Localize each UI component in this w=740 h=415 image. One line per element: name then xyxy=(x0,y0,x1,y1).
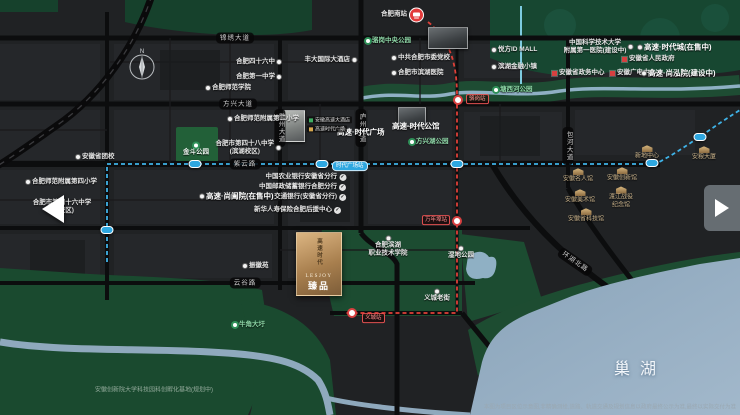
project-logo: 高速时代 LESJOY 臻品 xyxy=(296,232,342,296)
poi-dot-icon xyxy=(492,65,496,69)
map-label-museum-40: 新地中心 xyxy=(635,145,659,161)
map-label-text: 悦方ID MALL xyxy=(498,46,537,54)
poi-dot-icon xyxy=(276,146,280,150)
map-label-dot-3: 合肥师范学院 xyxy=(206,84,251,92)
map-label-text: 合肥市滨湖医院 xyxy=(398,69,444,77)
map-label-dot-12: 滨湖金融小镇 xyxy=(492,63,537,71)
map-label-text: 中国农业银行安徽省分行 xyxy=(266,173,338,181)
map-label-dot-9: 中共合肥市委党校 xyxy=(392,54,450,62)
map-label-big-59: 巢湖 xyxy=(614,360,666,380)
poi-dot-icon xyxy=(200,194,204,198)
carousel-next-button[interactable] xyxy=(704,185,740,231)
map-label-redsq-23: 安徽省政务中心 xyxy=(552,69,605,77)
map-label-check-21: 新华人寿保险合肥后援中心 xyxy=(254,206,341,214)
building-photo-1 xyxy=(428,27,468,49)
map-label-dot-6: 安徽省团校 xyxy=(76,153,115,161)
project-logo-vertical-text: 高速时代 xyxy=(315,238,323,266)
map-label-stlb-50: 时代广场站 xyxy=(332,161,368,171)
map-label-dot-15: 合肥滨湖职业技术学院 xyxy=(369,236,408,257)
map-label-redsq-22: 安徽省人民政府 xyxy=(622,55,675,63)
map-label-text: 安徽省人民政府 xyxy=(629,55,675,63)
map-label-text: 骆岗中央公园 xyxy=(372,37,411,45)
poi-dot-icon xyxy=(26,180,30,184)
map-label-hsr-54: 合肥南站 xyxy=(381,8,424,23)
map-label-text: 高速·尚阖院(在售中) xyxy=(206,191,274,200)
poi-dot-icon xyxy=(277,60,281,64)
government-marker-icon xyxy=(610,71,615,76)
map-label-text: 金斗公园 xyxy=(183,148,209,156)
poi-dot-icon xyxy=(628,45,632,49)
park-dot-icon xyxy=(194,143,198,147)
map-label-text: 骆岗站 xyxy=(469,96,486,103)
poi-dot-icon xyxy=(392,71,396,75)
map-label-museum-36: 安徽创新馆 xyxy=(607,167,637,183)
map-label-bold-29: 高速·尚泓院(建设中) xyxy=(642,68,716,77)
metro-station-blue-icon-3 xyxy=(451,160,464,168)
map-label-text: 万年埠站 xyxy=(425,217,447,224)
poi-dot-icon xyxy=(392,56,396,60)
poi-dot-icon xyxy=(638,45,642,49)
poi-dot-icon xyxy=(206,86,210,90)
map-label-roadv-49: 包河大道 xyxy=(562,127,573,165)
map-label-strb-53: 义城站 xyxy=(362,313,385,323)
map-label-text: 合肥师范学院 xyxy=(212,84,251,92)
poi-dot-icon xyxy=(492,48,496,52)
carousel-prev-arrow-icon[interactable] xyxy=(42,195,64,223)
map-label-text: 合肥滨湖职业技术学院 xyxy=(369,241,408,257)
checkmark-icon xyxy=(339,194,346,201)
map-label-dot-13: 中国科学技术大学附属第一医院(建设中) xyxy=(564,39,633,55)
map-label-dot-17: 义城老街 xyxy=(424,289,450,302)
map-label-text: 中国科学技术大学附属第一医院(建设中) xyxy=(564,39,627,55)
map-label-text: 中共合肥市委党校 xyxy=(398,54,450,62)
map-label-text: 时代广场站 xyxy=(336,163,364,170)
map-label-green2-32: 金斗公园 xyxy=(183,143,209,156)
metro-station-blue-icon-1 xyxy=(189,160,202,168)
map-label-text: 合肥第一中学 xyxy=(236,73,275,81)
map-label-dot-0: 合肥四十六中 xyxy=(236,58,281,66)
map-label-tago-56: 高速时代广场 xyxy=(307,125,347,132)
map-label-caption-57: 安徽创新院大学科技园科创孵化基地(规划中) xyxy=(95,387,213,395)
government-marker-icon xyxy=(552,71,557,76)
park-dot-icon xyxy=(410,140,414,144)
museum-building-icon xyxy=(572,168,583,175)
map-label-dot-1: 合肥第一中学 xyxy=(236,73,281,81)
map-label-text: 锦绣大道 xyxy=(220,34,250,42)
map-label-text: 安徽高速大酒店 xyxy=(315,117,350,123)
map-label-dot-4: 合肥师范附属第二小学 xyxy=(228,115,299,123)
map-label-bold-27: 高速·尚阖院(在售中) xyxy=(200,191,274,200)
map-label-text: 中国邮政储蓄银行合肥分行 xyxy=(259,183,337,191)
metro-station-blue-icon-0 xyxy=(101,226,114,234)
train-station-icon xyxy=(409,8,424,23)
map-label-strb-52: 万年埠站 xyxy=(422,215,450,225)
map-label-text: 巢湖 xyxy=(614,360,666,380)
map-label-strb-51: 骆岗站 xyxy=(466,94,489,104)
map-label-dot-10: 合肥市滨湖医院 xyxy=(392,69,444,77)
map-label-text: 合肥市第四十八中学(滨湖校区) xyxy=(216,140,275,156)
compass-north-letter: N xyxy=(140,49,144,55)
checkmark-icon xyxy=(334,207,341,214)
poi-dot-icon xyxy=(243,264,247,268)
map-label-text: 塘西河公园 xyxy=(500,86,533,94)
map-label-museum-38: 渡江战役纪念馆 xyxy=(609,187,633,210)
map-label-green-30: 骆岗中央公园 xyxy=(366,37,411,45)
poi-dot-icon xyxy=(228,117,232,121)
map-label-text: 安徽创新馆 xyxy=(607,175,637,183)
map-label-dot-2: 丰大国际大酒店 xyxy=(305,56,357,64)
poi-dot-icon xyxy=(459,246,463,250)
map-label-check-18: 中国农业银行安徽省分行 xyxy=(266,173,347,181)
museum-building-icon xyxy=(698,146,709,153)
map-label-text: 紫云路 xyxy=(234,160,257,168)
museum-building-icon xyxy=(641,145,652,152)
map-label-text: 高速时代广场 xyxy=(315,126,345,132)
map-label-roadh-44: 紫云路 xyxy=(230,158,261,169)
map-label-green-33: 方兴湖公园 xyxy=(410,138,449,146)
map-label-text: 方兴湖公园 xyxy=(416,138,449,146)
location-map: N 高速时代 LESJOY 臻品 合肥四十六中合肥第一中学丰大国际大酒店合肥师范… xyxy=(0,0,740,415)
museum-building-icon xyxy=(580,208,591,215)
map-label-text: 安徽创新院大学科技园科创孵化基地(规划中) xyxy=(95,387,213,395)
map-label-text: 湿地公园 xyxy=(448,251,474,259)
park-dot-icon xyxy=(233,323,237,327)
checkmark-icon xyxy=(339,174,346,181)
map-label-green-31: 塘西河公园 xyxy=(494,86,533,94)
park-dot-icon xyxy=(494,88,498,92)
map-label-bold-28: 高速·时代城(在售中) xyxy=(638,42,712,51)
map-label-text: 新华人寿保险合肥后援中心 xyxy=(254,206,332,214)
compass-icon: N xyxy=(126,46,158,82)
map-label-text: 高速·时代公馆 xyxy=(392,121,440,130)
map-label-text: 丰大国际大酒店 xyxy=(305,56,351,64)
map-label-roadh-45: 云谷路 xyxy=(230,277,261,288)
map-label-text: 高速·时代城(在售中) xyxy=(644,42,712,51)
map-label-text: 义城老街 xyxy=(424,294,450,302)
museum-building-icon xyxy=(615,187,626,194)
government-marker-icon xyxy=(622,57,627,62)
map-label-green-34: 牛角大圩 xyxy=(233,321,265,329)
map-label-text: 合肥师范附属第二小学 xyxy=(234,115,299,123)
map-label-roadh-43: 方兴大道 xyxy=(219,98,257,109)
map-label-museum-37: 安徽美术馆 xyxy=(565,189,595,205)
map-label-museum-39: 安徽省科技馆 xyxy=(568,208,604,224)
hotel-tag-icon xyxy=(309,118,313,122)
mall-tag-icon xyxy=(309,127,313,131)
map-label-text: 振徽苑 xyxy=(249,262,269,270)
map-label-text: 包河大道 xyxy=(564,131,572,161)
map-label-text: 合肥四十六中 xyxy=(236,58,275,66)
map-label-text: 方兴大道 xyxy=(223,100,253,108)
map-label-roadh-42: 锦绣大道 xyxy=(216,32,254,43)
metro-station-red-icon-0 xyxy=(453,95,463,105)
poi-dot-icon xyxy=(76,155,80,159)
map-label-text: 义城站 xyxy=(365,315,382,322)
map-label-museum-41: 安粮大厦 xyxy=(692,146,716,162)
map-label-dot-16: 湿地公园 xyxy=(448,246,474,259)
map-label-text: 新地中心 xyxy=(635,153,659,161)
map-label-text: 安徽省团校 xyxy=(82,153,115,161)
map-label-bold-26: 高速·时代公馆 xyxy=(392,121,440,130)
map-label-text: 安粮大厦 xyxy=(692,154,716,162)
map-label-tagg-55: 安徽高速大酒店 xyxy=(307,116,352,123)
map-label-text: 安徽美术馆 xyxy=(565,197,595,205)
map-label-text: 安徽省科技馆 xyxy=(568,216,604,224)
map-label-check-19: 中国邮政储蓄银行合肥分行 xyxy=(259,183,346,191)
map-label-text: 滨湖金融小镇 xyxy=(498,63,537,71)
map-label-text: 安徽省政务中心 xyxy=(559,69,605,77)
map-label-dot-14: 振徽苑 xyxy=(243,262,269,270)
map-label-dot-7: 合肥师范附属第四小学 xyxy=(26,178,97,186)
map-label-text: 安徽名人馆 xyxy=(563,176,593,184)
poi-dot-icon xyxy=(386,236,390,240)
metro-station-blue-icon-5 xyxy=(694,133,707,141)
metro-station-red-icon-1 xyxy=(452,216,462,226)
project-logo-name: 臻品 xyxy=(308,279,330,292)
map-label-museum-35: 安徽名人馆 xyxy=(563,168,593,184)
poi-dot-icon xyxy=(435,289,439,293)
park-dot-icon xyxy=(366,39,370,43)
poi-dot-icon xyxy=(352,58,356,62)
museum-building-icon xyxy=(574,189,585,196)
map-label-dot-11: 悦方ID MALL xyxy=(492,46,537,54)
carousel-next-arrow-icon xyxy=(715,199,729,217)
map-label-dot-5: 合肥市第四十八中学(滨湖校区) xyxy=(216,140,281,156)
map-label-text: 交通银行(安徽省分行) xyxy=(274,193,337,201)
metro-station-blue-icon-2 xyxy=(316,160,329,168)
map-label-text: 高速·尚泓院(建设中) xyxy=(648,68,716,77)
poi-dot-icon xyxy=(642,71,646,75)
map-label-text: 云谷路 xyxy=(234,279,257,287)
metro-station-red-icon-2 xyxy=(347,308,357,318)
map-label-text: 合肥师范附属第四小学 xyxy=(32,178,97,186)
map-label-text: 渡江战役纪念馆 xyxy=(609,195,633,210)
map-label-check-20: 交通银行(安徽省分行) xyxy=(274,193,346,201)
poi-dot-icon xyxy=(277,75,281,79)
checkmark-icon xyxy=(339,184,346,191)
map-label-text: 合肥南站 xyxy=(381,11,407,19)
map-label-caption2-58: 本图为项目区位示意图,非精确测绘,道路、轨道交通及规划信息以政府最终公示为准,最… xyxy=(484,405,736,412)
map-label-text: 牛角大圩 xyxy=(239,321,265,329)
museum-building-icon xyxy=(616,167,627,174)
map-label-text: 本图为项目区位示意图,非精确测绘,道路、轨道交通及规划信息以政府最终公示为准,最… xyxy=(484,405,736,412)
